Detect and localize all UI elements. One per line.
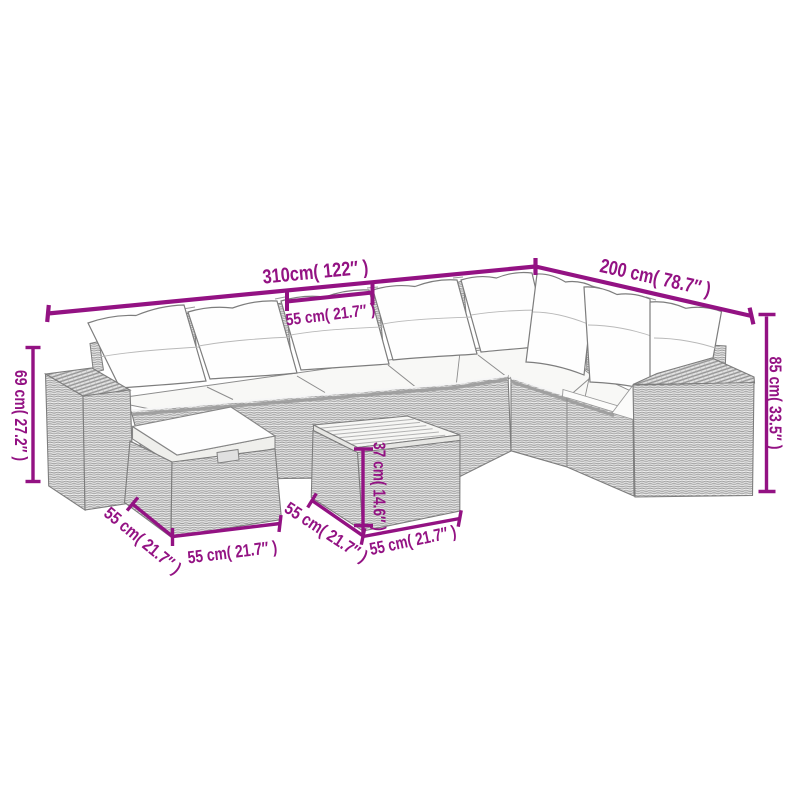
svg-text:37 cm( 14.6″ ): 37 cm( 14.6″ ) [370, 442, 390, 531]
svg-text:85 cm( 33.5″ ): 85 cm( 33.5″ ) [766, 357, 786, 450]
svg-text:69 cm( 27.2″ ): 69 cm( 27.2″ ) [11, 370, 31, 461]
